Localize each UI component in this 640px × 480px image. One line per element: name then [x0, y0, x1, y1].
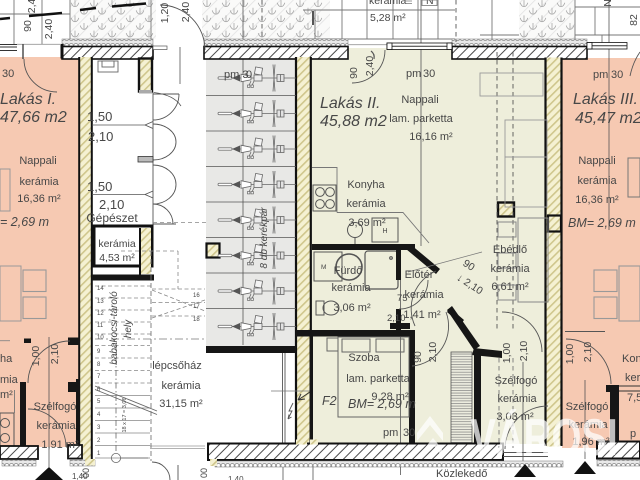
- svg-text:1,40: 1,40: [228, 475, 244, 480]
- svg-text:30: 30: [611, 69, 623, 81]
- svg-text:lam. parketta: lam. parketta: [346, 373, 410, 385]
- svg-text:Szélfogó: Szélfogó: [34, 401, 77, 413]
- svg-text:1,00: 1,00: [501, 343, 513, 364]
- svg-text:2,40: 2,40: [180, 2, 192, 23]
- svg-text:3,69 m²: 3,69 m²: [348, 217, 386, 229]
- svg-text:Szélfogó: Szélfogó: [495, 375, 538, 387]
- svg-text:Gépészet: Gépészet: [86, 211, 138, 225]
- svg-text:= 2,69 m: = 2,69 m: [0, 215, 49, 229]
- svg-text:kerámia: kerámia: [36, 420, 76, 432]
- svg-text:kerámia: kerámia: [19, 176, 59, 188]
- svg-text:kerámia: kerámia: [98, 238, 136, 250]
- svg-text:13: 13: [97, 299, 104, 305]
- svg-text:1,91 m²: 1,91 m²: [41, 439, 79, 451]
- svg-text:N: N: [602, 0, 614, 7]
- svg-text:kerámia: kerámia: [369, 0, 407, 7]
- svg-text:2,10: 2,10: [518, 341, 530, 362]
- svg-text:Konyha: Konyha: [347, 179, 385, 191]
- svg-text:82: 82: [628, 14, 640, 26]
- svg-text:10: 10: [97, 335, 104, 341]
- svg-text:3,06 m²: 3,06 m²: [333, 302, 371, 314]
- svg-text:17: 17: [193, 304, 200, 310]
- svg-text:1,50: 1,50: [87, 179, 112, 194]
- svg-text:90: 90: [22, 20, 34, 32]
- svg-text:Ebédlő: Ebédlő: [493, 244, 527, 256]
- svg-text:Konyha: Konyha: [622, 353, 640, 365]
- svg-text:1,41 m²: 1,41 m²: [403, 309, 441, 321]
- svg-text:4,53 m²: 4,53 m²: [99, 252, 135, 264]
- svg-text:18 x 17 = 3,06: 18 x 17 = 3,06: [122, 397, 128, 432]
- svg-text:1,00: 1,00: [564, 344, 576, 365]
- svg-text:babakocsi-tároló: babakocsi-tároló: [109, 291, 120, 365]
- svg-text:Lakás III.: Lakás III.: [573, 91, 638, 108]
- svg-text:F2: F2: [322, 394, 337, 408]
- svg-text:5,28 m²: 5,28 m²: [370, 12, 406, 24]
- svg-text:12: 12: [97, 311, 104, 317]
- svg-text:00: 00: [81, 468, 91, 478]
- svg-text:8 db kerékpár: 8 db kerékpár: [259, 207, 270, 269]
- svg-text:pm: pm: [383, 427, 398, 439]
- svg-text:lam. parketta: lam. parketta: [389, 113, 453, 125]
- svg-text:30: 30: [423, 68, 435, 80]
- svg-text:2,40: 2,40: [26, 0, 38, 13]
- svg-text:31,15 m²: 31,15 m²: [159, 398, 203, 410]
- svg-text:90: 90: [348, 67, 360, 79]
- svg-text:kerámia: kerámia: [331, 282, 371, 294]
- svg-text:pm: pm: [406, 68, 421, 80]
- svg-text:0: 0: [246, 69, 252, 81]
- svg-text:2,10: 2,10: [99, 197, 124, 212]
- svg-text:ha: ha: [0, 353, 13, 365]
- svg-text:H: H: [382, 228, 387, 235]
- svg-text:14: 14: [97, 286, 104, 292]
- svg-text:45,47 m2: 45,47 m2: [575, 110, 640, 127]
- svg-text:16,16 m²: 16,16 m²: [409, 131, 453, 143]
- svg-text:BM= 2,69 m: BM= 2,69 m: [348, 397, 416, 411]
- svg-text:45,88 m2: 45,88 m2: [320, 113, 387, 130]
- svg-text:Nappali: Nappali: [19, 155, 56, 167]
- svg-text:pm: pm: [593, 69, 608, 81]
- svg-text:Előtér: Előtér: [405, 269, 434, 281]
- svg-text:47,66 m2: 47,66 m2: [0, 109, 67, 126]
- svg-text:7,5: 7,5: [627, 392, 640, 404]
- svg-text:hely: hely: [123, 319, 134, 338]
- svg-text:Közlekedő: Közlekedő: [436, 468, 487, 480]
- svg-text:Lakás II.: Lakás II.: [320, 95, 380, 112]
- svg-text:00: 00: [199, 468, 209, 478]
- svg-text:lépcsőház: lépcsőház: [152, 360, 202, 372]
- svg-text:kerámia: kerámia: [577, 175, 617, 187]
- svg-text:16: 16: [193, 293, 200, 299]
- svg-text:mia: mia: [0, 374, 19, 386]
- svg-text:pm 3: pm 3: [224, 69, 248, 81]
- svg-text:Nappali: Nappali: [578, 155, 615, 167]
- svg-text:2,10: 2,10: [387, 313, 406, 324]
- svg-text:Nappali: Nappali: [401, 94, 438, 106]
- svg-text:1,20: 1,20: [159, 3, 171, 24]
- svg-text:2,10: 2,10: [427, 342, 439, 363]
- svg-text:75: 75: [397, 293, 408, 304]
- svg-text:Lakás I.: Lakás I.: [0, 91, 56, 108]
- svg-text:30: 30: [403, 427, 415, 439]
- svg-text:kerámia: kerámia: [346, 198, 386, 210]
- svg-text:2,10: 2,10: [88, 129, 113, 144]
- svg-text:2,10: 2,10: [49, 344, 61, 365]
- svg-text:18: 18: [193, 317, 200, 323]
- svg-text:Szoba: Szoba: [348, 352, 380, 364]
- svg-text:2,10: 2,10: [582, 342, 594, 363]
- svg-text:N: N: [426, 0, 434, 7]
- svg-text:16,36 m²: 16,36 m²: [17, 193, 61, 205]
- svg-text:VÁROSI: VÁROSI: [470, 408, 618, 466]
- svg-text:11: 11: [97, 323, 104, 329]
- svg-text:kerámia: kerámia: [490, 263, 530, 275]
- svg-text:BM= 2,69 m: BM= 2,69 m: [568, 216, 636, 230]
- svg-text:2,40: 2,40: [364, 56, 376, 77]
- svg-text:kerámia: kerámia: [625, 372, 640, 384]
- svg-text:m²: m²: [0, 389, 13, 401]
- svg-text:kerámia: kerámia: [497, 393, 537, 405]
- svg-text:1,00: 1,00: [30, 346, 42, 367]
- svg-text:M: M: [321, 264, 326, 271]
- svg-text:90: 90: [412, 351, 424, 363]
- svg-text:2,40: 2,40: [43, 19, 55, 40]
- svg-text:6,61 m²: 6,61 m²: [491, 281, 529, 293]
- svg-text:kerámia: kerámia: [404, 289, 444, 301]
- svg-text:1,50: 1,50: [87, 109, 112, 124]
- svg-text:16,36 m²: 16,36 m²: [575, 194, 619, 206]
- svg-text:30: 30: [2, 68, 14, 80]
- svg-text:kerámia: kerámia: [161, 380, 201, 392]
- svg-text:p: p: [630, 428, 636, 440]
- svg-text:Fürdő: Fürdő: [334, 265, 363, 277]
